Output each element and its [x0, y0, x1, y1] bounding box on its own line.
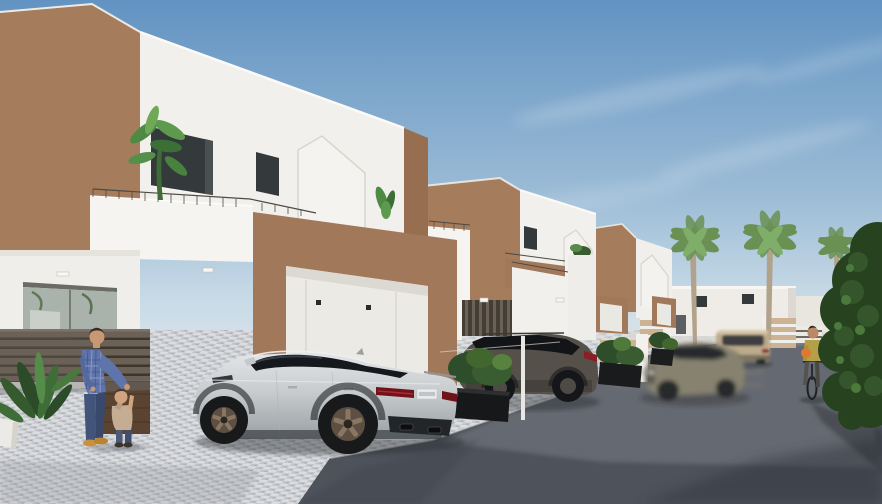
- head: [808, 328, 819, 339]
- exhaust: [400, 424, 413, 430]
- wall-lamp: [480, 298, 488, 302]
- wall-lamp: [57, 272, 69, 276]
- wheel: [318, 394, 378, 454]
- garage-fixture: [316, 300, 321, 305]
- window: [524, 226, 537, 250]
- body: [112, 405, 133, 430]
- entrance-volume: [512, 267, 568, 342]
- roof-rail: [482, 333, 564, 334]
- shoe: [94, 438, 108, 445]
- wall-lamp: [556, 298, 564, 302]
- window: [256, 152, 279, 196]
- architectural-render: [0, 0, 882, 504]
- wheel: [200, 396, 248, 444]
- planter-box: [650, 348, 674, 366]
- wall-lamp: [203, 268, 213, 272]
- exhaust: [428, 427, 441, 433]
- head: [115, 391, 128, 404]
- leg: [817, 362, 818, 387]
- bag: [801, 348, 811, 358]
- bg-door: [676, 315, 686, 334]
- tail-light: [762, 349, 769, 353]
- headlight: [648, 371, 654, 374]
- door-handle: [288, 386, 297, 389]
- planter-box: [598, 362, 642, 388]
- carport: [462, 300, 512, 336]
- bg-window: [742, 294, 754, 304]
- head: [90, 330, 105, 345]
- garage-fixture: [366, 305, 371, 310]
- scene-canvas: [0, 0, 882, 504]
- leg: [805, 362, 807, 385]
